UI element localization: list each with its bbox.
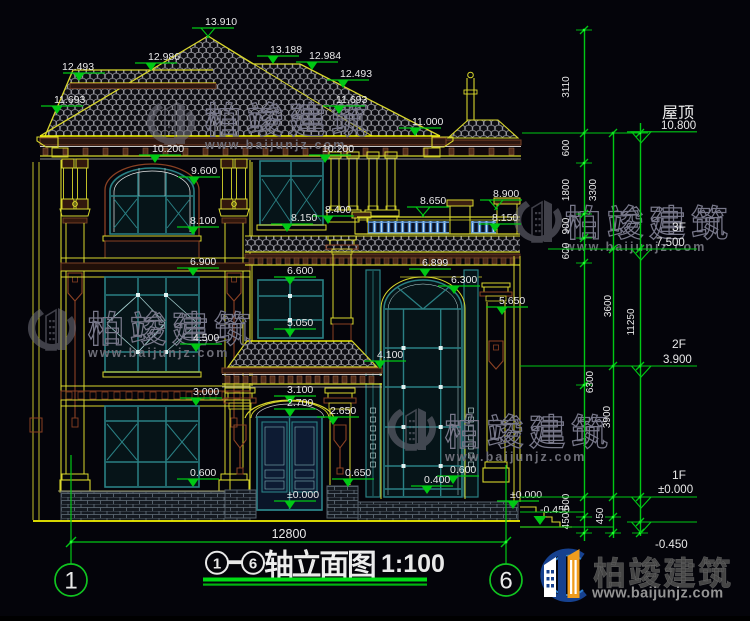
svg-text:10.200: 10.200 [152, 143, 184, 155]
svg-text:6.600: 6.600 [287, 265, 313, 277]
svg-text:600: 600 [561, 493, 572, 510]
svg-text:3.100: 3.100 [287, 384, 313, 396]
svg-text:9.600: 9.600 [191, 165, 217, 177]
svg-text:-0.450: -0.450 [655, 539, 688, 551]
svg-text:1800: 1800 [561, 178, 572, 201]
svg-text:0.600: 0.600 [190, 467, 216, 479]
svg-text:6300: 6300 [585, 370, 596, 393]
svg-text:0.400: 0.400 [424, 474, 450, 486]
svg-text:12.493: 12.493 [340, 68, 372, 80]
svg-text:900: 900 [561, 217, 572, 234]
svg-text:12.984: 12.984 [309, 50, 341, 62]
svg-text:8.100: 8.100 [190, 215, 216, 227]
svg-text:12.986: 12.986 [148, 51, 180, 63]
svg-text:6.300: 6.300 [451, 274, 477, 286]
svg-text:±0.000: ±0.000 [510, 489, 542, 501]
svg-text:1F: 1F [672, 468, 686, 482]
svg-text:8.900: 8.900 [493, 188, 519, 200]
svg-text:6.899: 6.899 [422, 257, 448, 269]
svg-text:8.150: 8.150 [492, 212, 518, 224]
svg-text:11250: 11250 [626, 308, 637, 336]
svg-text:3F: 3F [672, 220, 686, 234]
svg-text:8.650: 8.650 [420, 195, 446, 207]
svg-text:3600: 3600 [603, 294, 614, 317]
svg-text:±0.000: ±0.000 [658, 484, 693, 496]
svg-text:1: 1 [213, 555, 221, 572]
svg-text:0.650: 0.650 [345, 467, 371, 479]
svg-text:600: 600 [561, 139, 572, 156]
svg-text:11.000: 11.000 [412, 116, 443, 128]
svg-text:www.baijunjz.com: www.baijunjz.com [564, 240, 706, 254]
svg-text:2.700: 2.700 [287, 397, 313, 409]
svg-text:3300: 3300 [588, 178, 599, 201]
svg-text:3110: 3110 [561, 76, 572, 98]
svg-text:11.693: 11.693 [336, 94, 367, 106]
svg-text:13.910: 13.910 [205, 16, 237, 28]
svg-text:2F: 2F [672, 337, 686, 351]
svg-text:www.baijunjz.com: www.baijunjz.com [87, 346, 229, 360]
svg-text:1:100: 1:100 [381, 550, 445, 578]
svg-text:1: 1 [64, 568, 77, 595]
svg-text:2.650: 2.650 [330, 405, 356, 417]
svg-text:±0.000: ±0.000 [287, 489, 319, 501]
svg-text:5.650: 5.650 [499, 295, 525, 307]
svg-text:12.493: 12.493 [62, 61, 94, 73]
svg-text:13.188: 13.188 [270, 44, 302, 56]
svg-text:3.900: 3.900 [663, 354, 692, 366]
svg-text:6: 6 [499, 568, 512, 595]
svg-text:0.600: 0.600 [450, 464, 476, 476]
svg-text:12800: 12800 [272, 527, 307, 541]
svg-text:10.800: 10.800 [661, 120, 696, 132]
svg-text:6.900: 6.900 [190, 256, 216, 268]
svg-text:4.100: 4.100 [377, 349, 403, 361]
svg-text:8.150: 8.150 [291, 212, 317, 224]
svg-text:10.200: 10.200 [322, 143, 354, 155]
svg-text:4.500: 4.500 [193, 332, 219, 344]
svg-text:5.050: 5.050 [287, 317, 313, 329]
svg-text:www.baijunjz.com: www.baijunjz.com [591, 586, 724, 602]
svg-text:8.400: 8.400 [325, 204, 351, 216]
svg-text:450: 450 [595, 507, 606, 524]
svg-text:11.693: 11.693 [54, 94, 85, 106]
svg-text:3.000: 3.000 [193, 386, 219, 398]
svg-text:7.500: 7.500 [656, 237, 685, 249]
svg-text:3900: 3900 [602, 405, 613, 428]
svg-text:www.baijunjz.com: www.baijunjz.com [444, 450, 586, 464]
svg-text:600: 600 [561, 242, 572, 259]
svg-text:6: 6 [249, 555, 257, 572]
